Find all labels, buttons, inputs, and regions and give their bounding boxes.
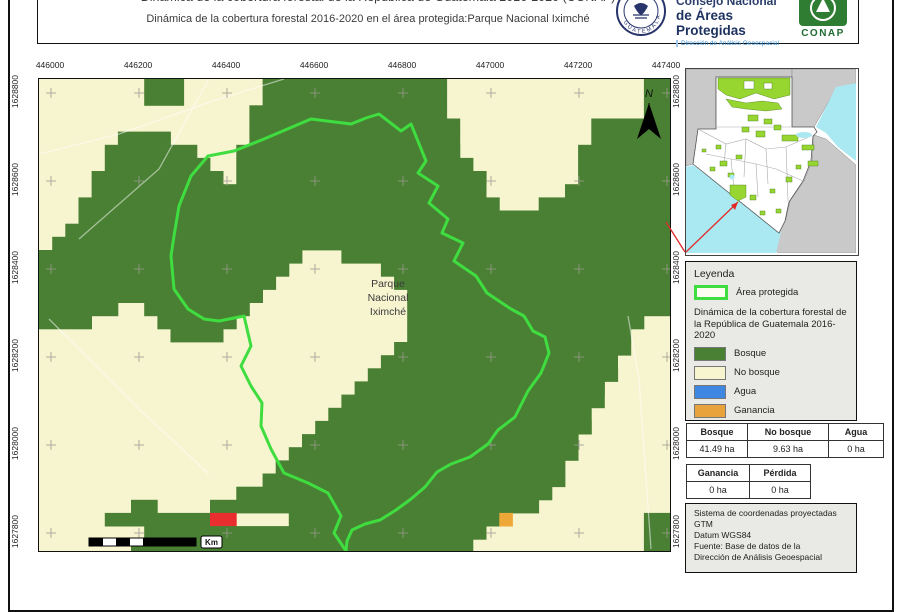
y-coordinate-label: 1628200 bbox=[671, 339, 681, 372]
table-header-row: Ganancia Pérdida bbox=[687, 465, 811, 482]
y-coordinate-label: 1628400 bbox=[10, 251, 20, 284]
ganancia-value: 0 ha bbox=[687, 482, 750, 499]
info-line: Datum WGS84 bbox=[694, 530, 848, 541]
legend: Leyenda Área protegida Dinámica de la co… bbox=[685, 261, 857, 421]
svg-text:N: N bbox=[645, 88, 653, 100]
forest-raster-layer bbox=[39, 79, 670, 552]
table-value-row: 0 ha 0 ha bbox=[687, 482, 811, 499]
projection-info-box: Sistema de coordenadas proyectadas GTM D… bbox=[685, 503, 857, 573]
table-header-row: Bosque No bosque Agua bbox=[687, 424, 884, 441]
legend-item-area-protegida: Área protegida bbox=[694, 285, 848, 300]
y-coordinate-label: 1627800 bbox=[671, 515, 681, 548]
area-protegida-swatch bbox=[694, 285, 728, 300]
no-bosque-swatch bbox=[694, 366, 726, 380]
agua-value: 0 ha bbox=[829, 441, 884, 458]
conap-logo-label: CONAP bbox=[797, 28, 849, 39]
perdida-value: 0 ha bbox=[750, 482, 811, 499]
scale-bar: Km bbox=[89, 536, 222, 548]
lake-atitlan bbox=[730, 175, 735, 180]
legend-item-ganancia: Ganancia bbox=[694, 404, 848, 418]
legend-title: Leyenda bbox=[694, 268, 848, 280]
bosque-value: 41.49 ha bbox=[687, 441, 748, 458]
svg-text:Iximché: Iximché bbox=[370, 306, 406, 318]
y-coordinate-label: 1628200 bbox=[10, 339, 20, 372]
conap-logo bbox=[799, 0, 847, 26]
y-coordinate-label: 1628800 bbox=[10, 75, 20, 108]
info-line: Dirección de Análisis Geoespacial bbox=[694, 552, 848, 563]
legend-item-agua: Agua bbox=[694, 385, 848, 399]
y-coordinate-label: 1628000 bbox=[671, 427, 681, 460]
protected-area-label: Parque Nacional Iximché bbox=[368, 278, 409, 318]
bosque-swatch bbox=[694, 347, 726, 361]
org-line3: Dirección de Análisis Geoespacial bbox=[676, 40, 796, 47]
x-coordinate-label: 447400 bbox=[644, 60, 688, 70]
org-line1: Consejo Nacional bbox=[676, 0, 796, 8]
x-coordinate-label: 447000 bbox=[468, 60, 512, 70]
y-coordinate-label: 1628800 bbox=[671, 75, 681, 108]
y-coordinate-label: 1628600 bbox=[671, 163, 681, 196]
agua-swatch bbox=[694, 385, 726, 399]
conap-emblem bbox=[816, 0, 830, 12]
legend-item-no-bosque: No bosque bbox=[694, 366, 848, 380]
info-line: GTM bbox=[694, 519, 848, 530]
info-line: Fuente: Base de datos de la bbox=[694, 541, 848, 552]
map-layout-page: { "header": { "clipped_title": "Dinámica… bbox=[0, 0, 900, 550]
svg-text:Nacional: Nacional bbox=[368, 292, 409, 304]
main-map: Parque Nacional Iximché N Km bbox=[38, 78, 671, 552]
leader-line-segment bbox=[658, 216, 688, 258]
org-name-block: Consejo Nacional de Áreas Protegidas Dir… bbox=[676, 0, 796, 47]
svg-text:Parque: Parque bbox=[371, 278, 405, 290]
header-clipped-title: Dinámica de la cobertura forestal de la … bbox=[98, 0, 658, 4]
x-coordinate-label: 446400 bbox=[204, 60, 248, 70]
guatemala-seal-logo: GUATEMALA bbox=[612, 0, 670, 42]
org-line2: de Áreas Protegidas bbox=[676, 8, 796, 38]
scale-unit-label: Km bbox=[205, 538, 218, 547]
legend-item-bosque: Bosque bbox=[694, 347, 848, 361]
lake-izabal bbox=[796, 132, 812, 138]
coverage-stats-table: Bosque No bosque Agua 41.49 ha 9.63 ha 0… bbox=[686, 423, 884, 458]
x-coordinate-label: 446000 bbox=[28, 60, 72, 70]
x-coordinate-label: 447200 bbox=[556, 60, 600, 70]
no-bosque-value: 9.63 ha bbox=[748, 441, 829, 458]
x-coordinate-label: 446600 bbox=[292, 60, 336, 70]
map-title: Dinámica de la cobertura forestal 2016-2… bbox=[78, 13, 658, 25]
table-value-row: 41.49 ha 9.63 ha 0 ha bbox=[687, 441, 884, 458]
guatemala-inset-map bbox=[685, 68, 859, 256]
y-coordinate-label: 1627800 bbox=[10, 515, 20, 548]
info-line: Sistema de coordenadas proyectadas bbox=[694, 508, 848, 519]
legend-subtitle: Dinámica de la cobertura forestal de la … bbox=[694, 307, 848, 342]
change-stats-table: Ganancia Pérdida 0 ha 0 ha bbox=[686, 464, 811, 499]
y-coordinate-label: 1628600 bbox=[10, 163, 20, 196]
x-coordinate-label: 446200 bbox=[116, 60, 160, 70]
y-coordinate-label: 1628000 bbox=[10, 427, 20, 460]
x-coordinate-label: 446800 bbox=[380, 60, 424, 70]
ganancia-swatch bbox=[694, 404, 726, 418]
